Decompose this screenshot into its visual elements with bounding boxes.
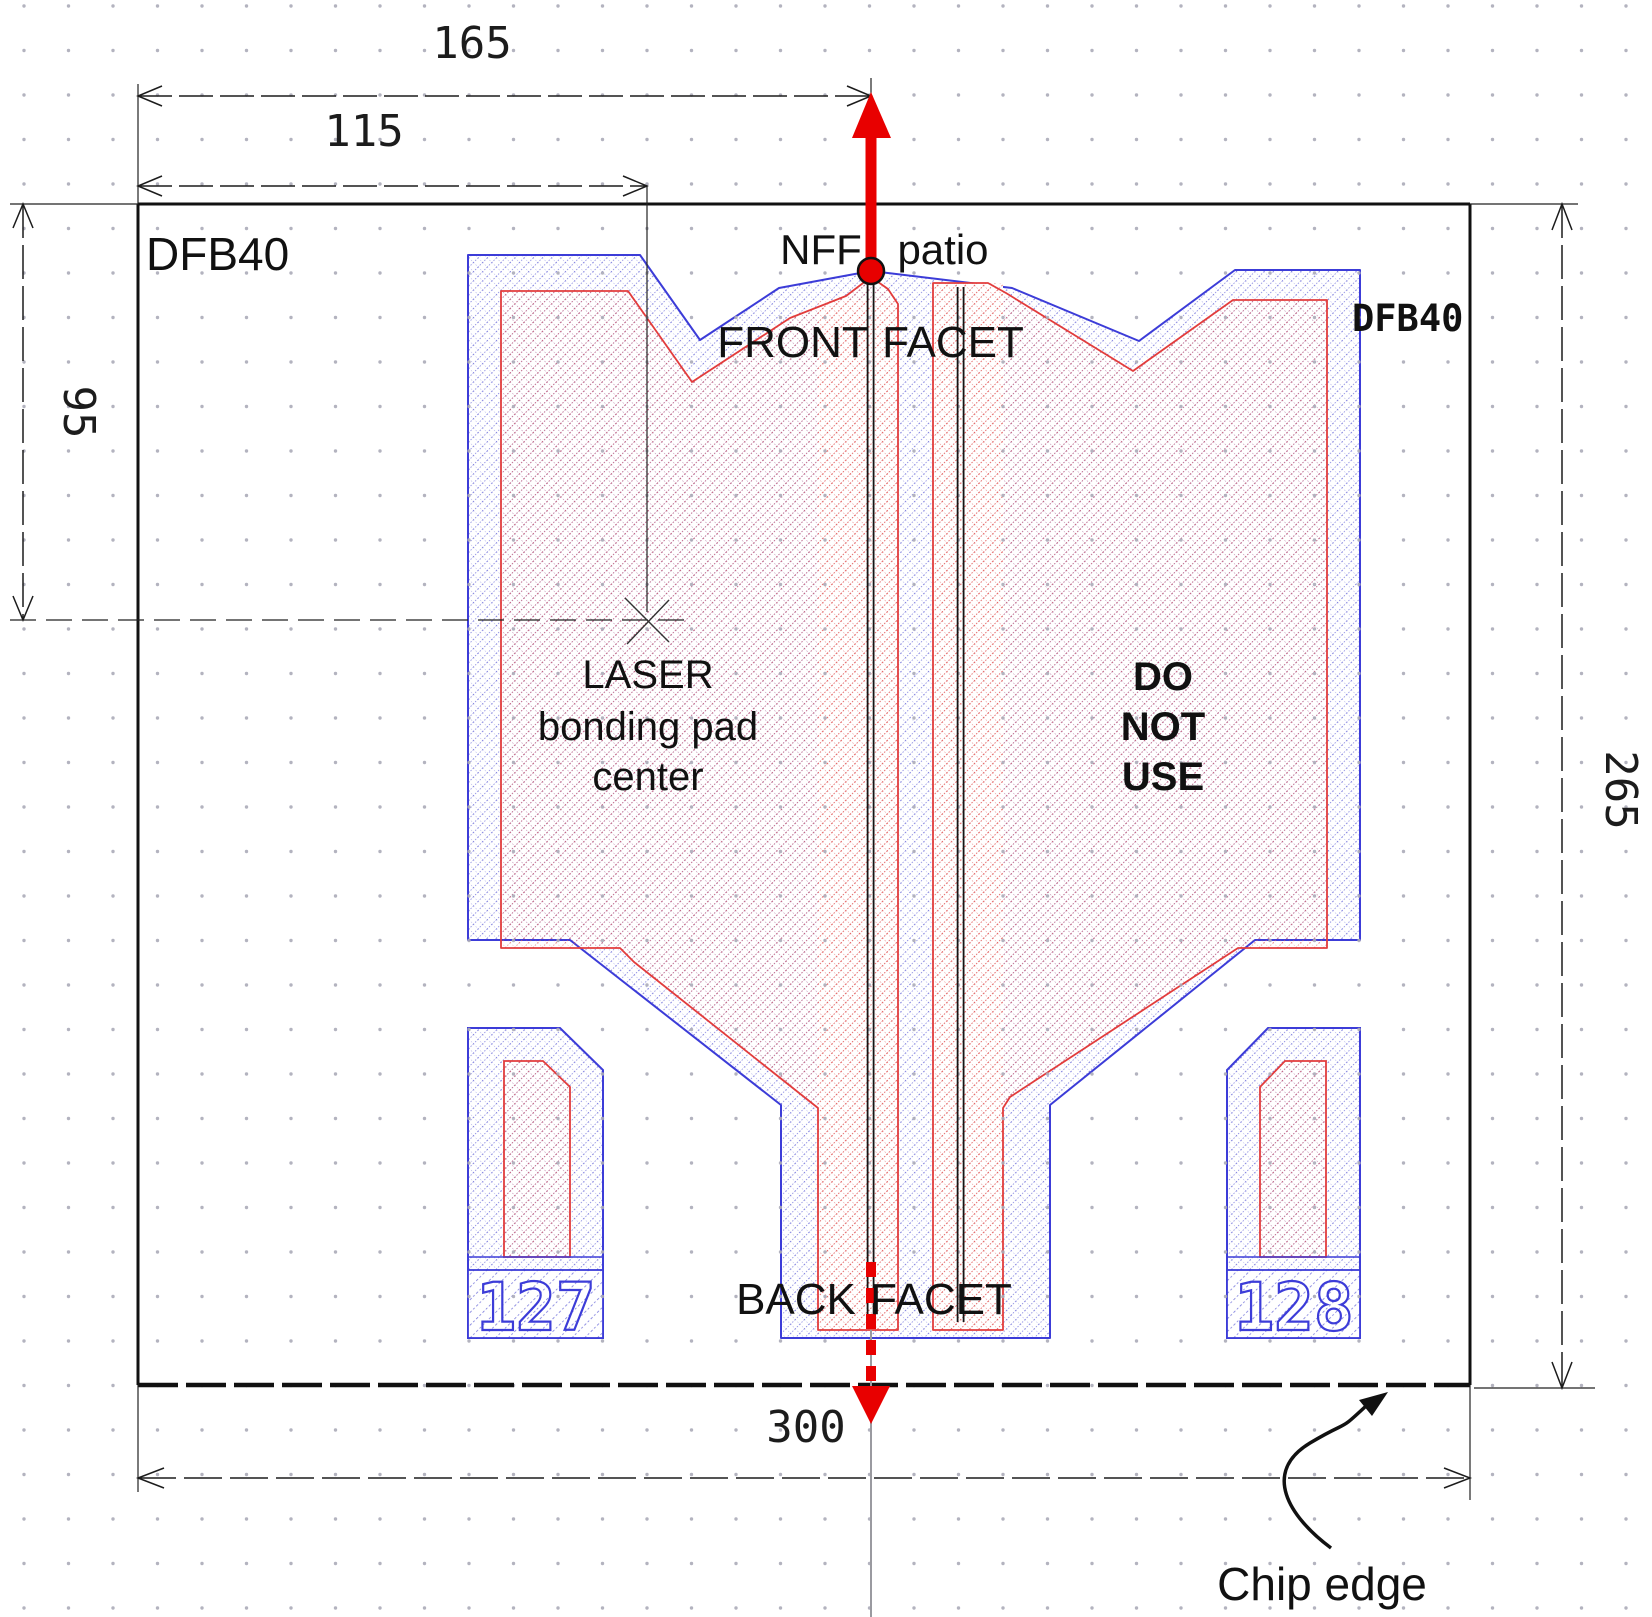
- dim-95-value: 95: [53, 386, 104, 439]
- do-not-use-line1: DO: [1133, 655, 1193, 699]
- front-facet-label-left: FRONT: [717, 318, 869, 367]
- do-not-use-line2: NOT: [1121, 705, 1205, 749]
- cad-layout-viewport: 165 115 95 265 300 DFB40: [0, 0, 1652, 1617]
- laser-pad-label-line2: bonding pad: [538, 705, 758, 749]
- chip-edge-label: Chip edge: [1217, 1558, 1427, 1610]
- dim-115-value: 115: [324, 106, 403, 157]
- front-facet-label-right: FACET: [882, 318, 1024, 367]
- chip-name-label-right: DFB40: [1352, 297, 1463, 340]
- dim-165-value: 165: [432, 18, 511, 69]
- front-facet-marker: [858, 258, 884, 284]
- chip-name-label-left: DFB40: [146, 228, 289, 280]
- dim-265-value: 265: [1595, 750, 1646, 829]
- back-facet-label-right: FACET: [870, 1275, 1012, 1324]
- laser-pad-label-line3: center: [592, 755, 703, 799]
- nff-label: NFF: [780, 226, 862, 273]
- back-facet-label-left: BACK: [736, 1275, 856, 1324]
- patio-label: patio: [897, 226, 988, 273]
- do-not-use-line3: USE: [1122, 755, 1204, 799]
- laser-pad-label-line1: LASER: [582, 653, 713, 697]
- pad-127-number: 127: [476, 1269, 595, 1346]
- chip-layout-drawing: 165 115 95 265 300 DFB40: [0, 0, 1652, 1617]
- dim-300-value: 300: [766, 1402, 845, 1453]
- pad-128-number: 128: [1234, 1269, 1353, 1346]
